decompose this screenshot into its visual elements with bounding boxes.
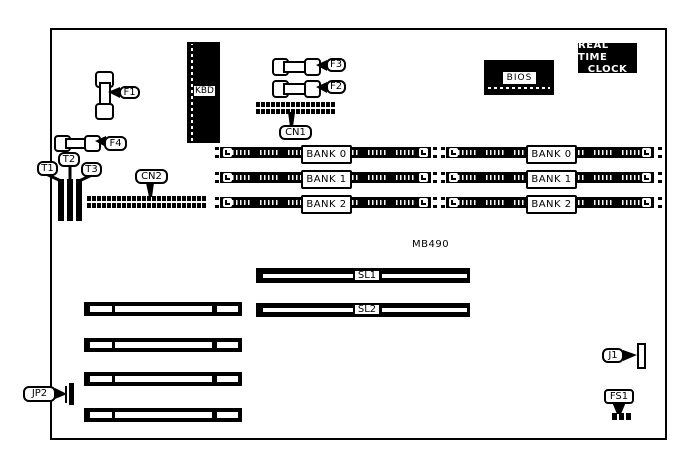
pointer-lines (0, 0, 692, 456)
j1-arrow (623, 350, 637, 361)
j1-label: J1 (602, 348, 624, 363)
cn1-label: CN1 (279, 125, 312, 140)
cn2-label: CN2 (135, 169, 168, 184)
cn2-pointer (146, 183, 154, 197)
jp2-label: JP2 (23, 386, 56, 402)
jp2-arrow (55, 388, 67, 399)
f4-label: F4 (104, 136, 127, 151)
motherboard-diagram: KBD F1 F3 F2 CN1 F4 T1 T2 T3 CN2 (0, 0, 692, 456)
t3-label: T3 (81, 162, 102, 177)
f2-label: F2 (326, 80, 346, 94)
fs1-label: FS1 (604, 389, 634, 404)
t2-label: T2 (58, 152, 80, 167)
f3-label: F3 (326, 58, 346, 72)
f1-label: F1 (119, 86, 140, 99)
t1-label: T1 (37, 161, 58, 176)
